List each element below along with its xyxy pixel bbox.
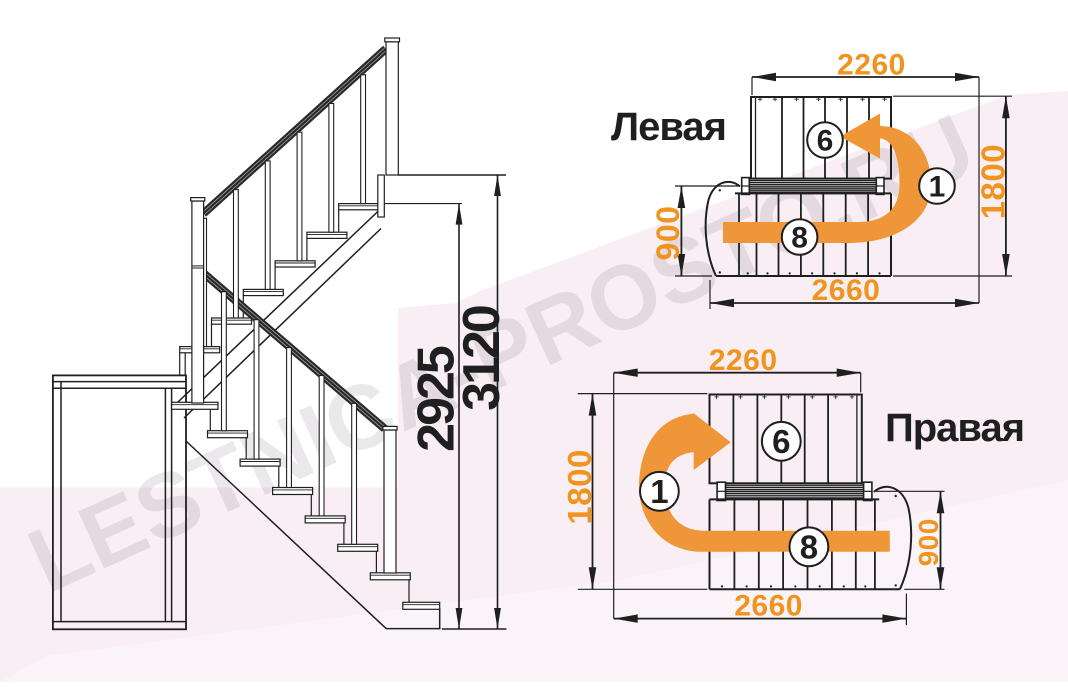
svg-text:2660: 2660 [734, 589, 803, 622]
svg-text:3120: 3120 [453, 306, 511, 411]
svg-text:2260: 2260 [709, 344, 778, 377]
svg-text:1800: 1800 [561, 449, 598, 524]
svg-text:1: 1 [650, 473, 668, 510]
svg-text:8: 8 [791, 222, 808, 255]
svg-text:6: 6 [772, 423, 790, 460]
svg-text:2260: 2260 [837, 49, 906, 82]
svg-text:Правая: Правая [885, 406, 1024, 450]
svg-text:2660: 2660 [812, 274, 881, 307]
svg-text:1800: 1800 [974, 144, 1011, 219]
svg-text:900: 900 [913, 518, 944, 566]
svg-text:8: 8 [800, 528, 818, 565]
svg-text:Левая: Левая [611, 105, 726, 149]
svg-text:6: 6 [817, 125, 834, 158]
svg-text:900: 900 [650, 206, 686, 261]
svg-text:1: 1 [929, 171, 946, 204]
